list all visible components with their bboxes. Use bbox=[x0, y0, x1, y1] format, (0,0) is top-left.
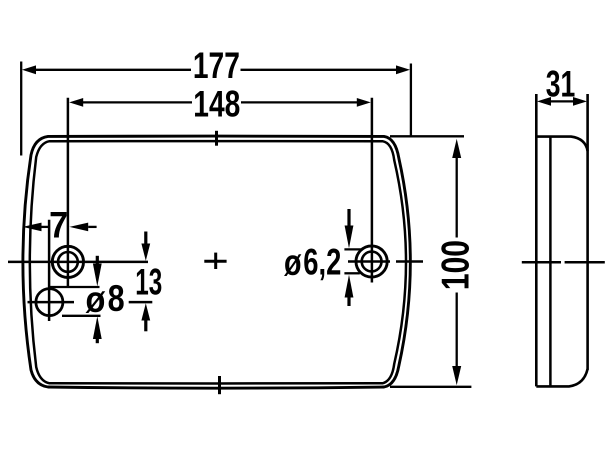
svg-text:31: 31 bbox=[546, 63, 576, 105]
svg-text:13: 13 bbox=[135, 261, 162, 303]
svg-text:6,2: 6,2 bbox=[303, 240, 341, 282]
svg-text:ø: ø bbox=[284, 241, 302, 283]
svg-text:ø: ø bbox=[85, 278, 105, 320]
svg-text:177: 177 bbox=[193, 44, 240, 86]
svg-text:7: 7 bbox=[49, 203, 68, 245]
svg-text:100: 100 bbox=[435, 240, 478, 290]
svg-text:8: 8 bbox=[108, 277, 125, 319]
svg-text:148: 148 bbox=[193, 83, 240, 125]
